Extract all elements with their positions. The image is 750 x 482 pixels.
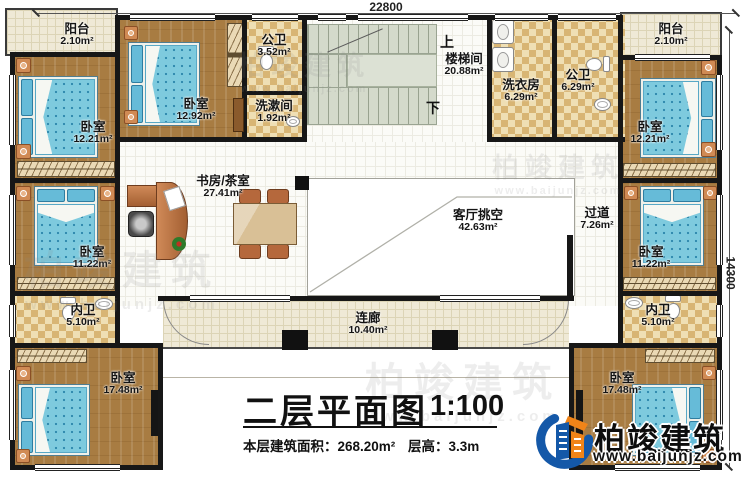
column xyxy=(295,176,309,190)
room-label-corridor: 连廊10.40m² xyxy=(348,311,387,337)
nightstand-symbol xyxy=(702,366,716,380)
wall xyxy=(10,343,163,348)
window xyxy=(318,14,346,21)
floor-area-value: 268.20m² xyxy=(338,439,396,454)
wardrobe-symbol xyxy=(17,349,87,363)
nightstand-symbol xyxy=(16,449,30,463)
wall xyxy=(618,15,623,348)
floor-area-label: 本层建筑面积： xyxy=(243,439,338,454)
wall xyxy=(158,343,163,470)
wardrobe-symbol xyxy=(17,277,115,290)
wall xyxy=(115,137,307,142)
room-label-balcony-left: 阳台2.10m² xyxy=(60,22,93,48)
window xyxy=(9,75,16,145)
wardrobe-symbol xyxy=(623,277,716,290)
window xyxy=(635,54,710,61)
room-label-bedroom-right-top: 卧室12.21m² xyxy=(630,120,669,146)
plant-symbol xyxy=(172,237,186,251)
window xyxy=(558,14,616,21)
window xyxy=(9,370,16,440)
window xyxy=(130,14,215,21)
nightstand-symbol xyxy=(16,144,31,159)
room-label-living-void: 客厅挑空42.63m² xyxy=(453,208,503,234)
window xyxy=(358,14,468,21)
stairs-flight-bottom xyxy=(307,87,437,125)
wardrobe-symbol xyxy=(623,163,716,177)
wall xyxy=(302,15,307,142)
stairs-down-label: 下 xyxy=(426,98,440,118)
room-label-bedroom-top-2: 卧室12.92m² xyxy=(176,97,215,123)
wall xyxy=(569,343,722,348)
void-diagonal-line xyxy=(307,178,575,296)
room-label-hallway: 过道7.26m² xyxy=(580,206,613,232)
wall xyxy=(242,91,307,95)
stairs-up-label: 上 xyxy=(440,32,454,52)
window xyxy=(252,14,298,21)
wall xyxy=(10,52,120,57)
nightstand-symbol xyxy=(124,26,138,40)
floor-height-value: 3.3m xyxy=(449,439,480,454)
wall xyxy=(552,15,557,142)
room-label-bath-top-left: 公卫3.52m² xyxy=(257,33,290,59)
window xyxy=(9,195,16,265)
wall xyxy=(115,15,120,348)
wardrobe-symbol xyxy=(17,161,115,177)
wall xyxy=(10,291,120,296)
wall xyxy=(618,178,722,183)
chair-symbol xyxy=(267,244,289,259)
nightstand-symbol xyxy=(701,142,716,157)
desk-symbol xyxy=(127,185,159,207)
corridor-column xyxy=(282,330,308,350)
title-underline xyxy=(243,426,497,428)
window xyxy=(716,75,723,150)
wall xyxy=(487,15,492,142)
lower-roof-edge-line xyxy=(163,377,569,378)
wall xyxy=(10,178,120,183)
window xyxy=(716,305,723,337)
window xyxy=(716,195,723,265)
room-label-balcony-right: 阳台2.10m² xyxy=(654,22,687,48)
washing-machine-symbol xyxy=(492,47,514,72)
nightstand-symbol xyxy=(16,366,31,381)
brand-website: www.baijunjz.com xyxy=(593,448,743,466)
room-label-bath-top-right: 公卫6.29m² xyxy=(561,68,594,94)
room-label-bedroom-right-bottom: 卧室17.48m² xyxy=(602,371,641,397)
nightstand-symbol xyxy=(16,186,31,201)
sink-symbol xyxy=(594,98,611,111)
room-label-bath-left: 内卫5.10m² xyxy=(66,303,99,329)
wall xyxy=(567,235,573,298)
floor-height-label: 层高： xyxy=(408,439,449,454)
wardrobe-symbol xyxy=(645,349,715,363)
stairs-flight-top xyxy=(307,24,437,54)
chair-symbol xyxy=(267,189,289,204)
room-label-laundry: 洗衣房6.29m² xyxy=(502,78,540,104)
window xyxy=(495,14,548,21)
dimension-top-value: 22800 xyxy=(350,0,422,14)
nightstand-symbol xyxy=(124,110,138,124)
brand-logo-icon xyxy=(532,412,594,470)
nightstand-symbol xyxy=(701,60,716,75)
floor-area-info: 本层建筑面积：268.20m² xyxy=(243,435,395,455)
nightstand-symbol xyxy=(624,186,638,200)
tea-table-symbol xyxy=(233,203,297,245)
wall xyxy=(618,291,722,296)
chair-symbol xyxy=(239,244,261,259)
nightstand-symbol xyxy=(100,186,115,201)
wardrobe-symbol xyxy=(227,23,243,87)
door-leaf xyxy=(233,98,244,132)
room-label-bath-right: 内卫5.10m² xyxy=(641,303,674,329)
floor-plan: 阳台2.10m² 卧室12.21m² 卧室12.92m² 公卫3.52m² 洗漱… xyxy=(0,0,750,482)
room-label-bedroom-right-mid: 卧室11.22m² xyxy=(632,245,671,271)
sink-symbol xyxy=(625,297,643,309)
dimension-line-right xyxy=(729,30,730,468)
window xyxy=(440,295,540,302)
corridor-column xyxy=(432,330,458,350)
tv-symbol xyxy=(151,390,158,436)
room-label-bedroom-left-mid: 卧室11.22m² xyxy=(73,245,112,271)
window xyxy=(35,464,120,471)
desk-chair-symbol xyxy=(128,211,154,237)
corridor-edge-line xyxy=(158,347,574,349)
nightstand-symbol xyxy=(703,186,717,200)
room-label-washroom-top: 洗漱间1.92m² xyxy=(255,99,293,125)
title-scale: 1:100 xyxy=(430,390,504,423)
room-label-bedroom-left-top: 卧室12.21m² xyxy=(73,120,112,146)
dimension-right-value: 14300 xyxy=(724,256,738,289)
window xyxy=(9,305,16,337)
bed-symbol xyxy=(18,384,90,456)
stairs-landing xyxy=(347,54,437,87)
room-label-study-tea: 书房/茶室27.41m² xyxy=(196,174,249,200)
room-label-stairwell: 楼梯间20.88m² xyxy=(444,52,483,78)
room-label-bedroom-left-bottom: 卧室17.48m² xyxy=(103,371,142,397)
window xyxy=(190,295,290,302)
floor-height-info: 层高：3.3m xyxy=(408,435,479,455)
washing-machine-symbol xyxy=(492,19,514,44)
nightstand-symbol xyxy=(16,58,31,73)
